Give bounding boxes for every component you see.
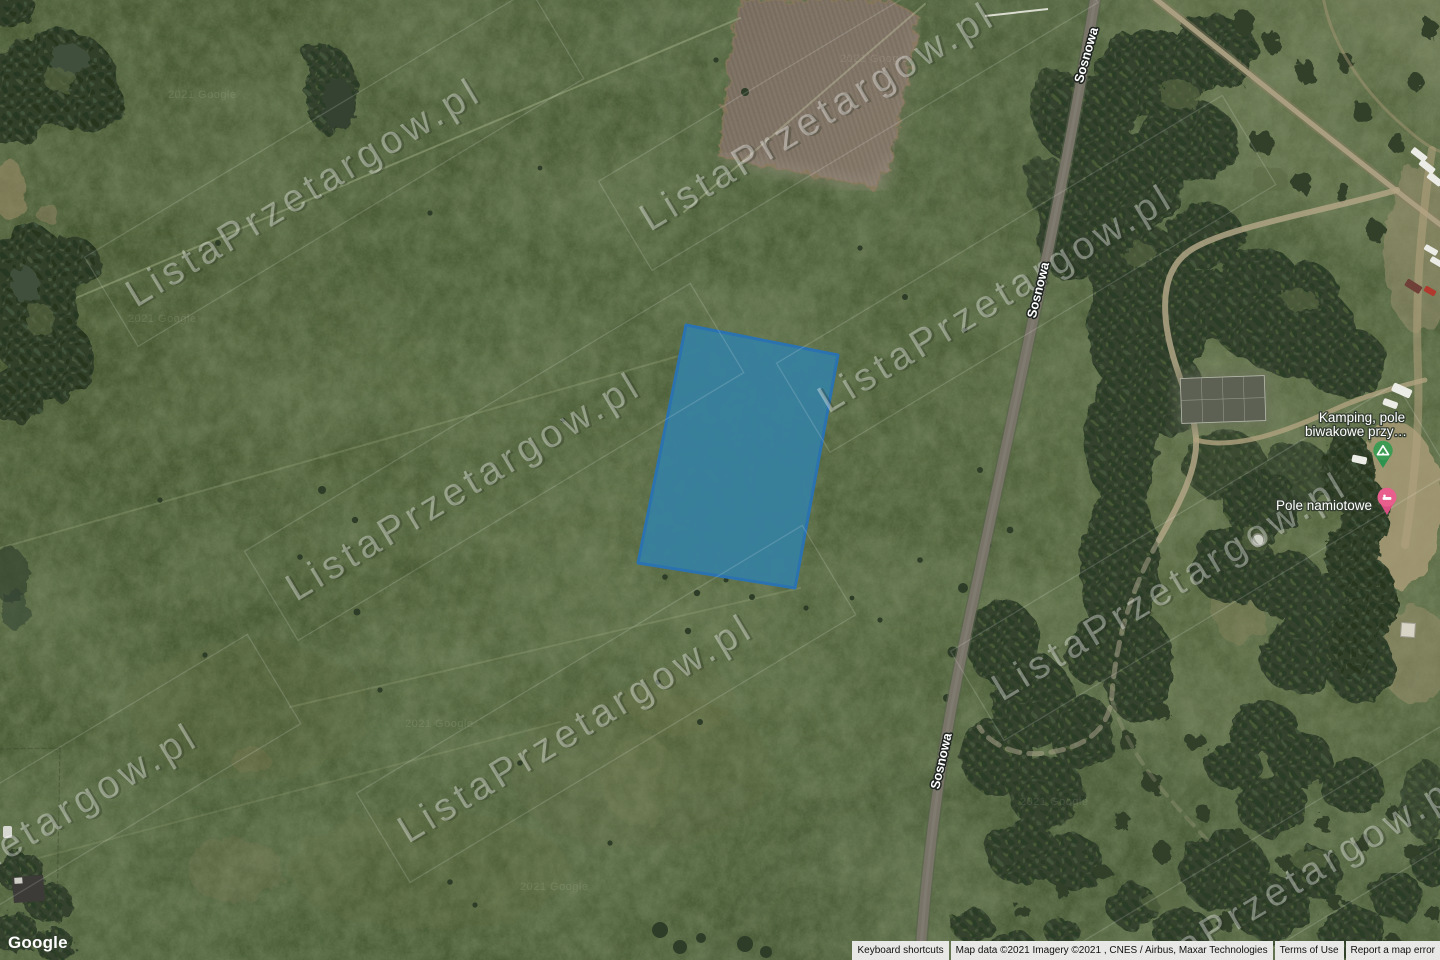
svg-text:2021 Google: 2021 Google [1020,796,1089,808]
svg-text:2021 Google: 2021 Google [128,313,197,325]
svg-text:2021 Google: 2021 Google [520,881,589,893]
svg-text:2021 Google: 2021 Google [405,718,474,730]
svg-text:Kamping, pole: Kamping, pole [1319,410,1405,425]
svg-text:biwakowe przy…: biwakowe przy… [1305,424,1407,439]
svg-text:Pole namiotowe: Pole namiotowe [1276,498,1372,513]
svg-text:2021 Google: 2021 Google [840,53,909,65]
svg-text:2021 Google: 2021 Google [168,89,237,101]
